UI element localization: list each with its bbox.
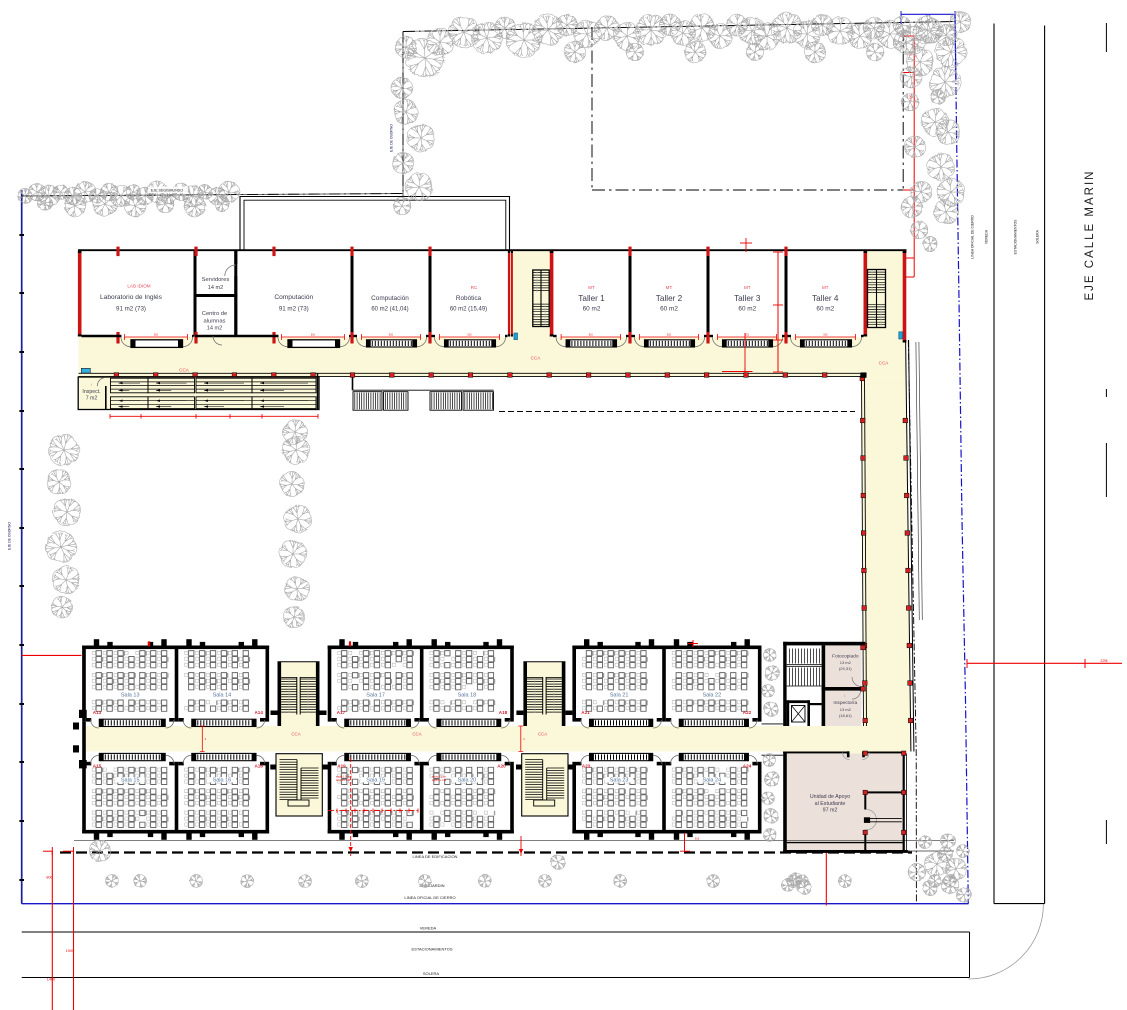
svg-text:510: 510: [389, 334, 394, 337]
svg-text:2296: 2296: [1100, 659, 1107, 663]
svg-text:800: 800: [46, 876, 52, 880]
svg-text:7 m2: 7 m2: [86, 395, 98, 401]
svg-text:Taller 4: Taller 4: [812, 294, 839, 303]
svg-text:MT: MT: [588, 285, 595, 290]
svg-text:Computación: Computación: [274, 294, 313, 301]
svg-text:510: 510: [589, 334, 594, 337]
svg-text:MT: MT: [744, 285, 751, 290]
svg-text:A16: A16: [254, 764, 263, 769]
svg-text:510: 510: [667, 334, 672, 337]
svg-text:(18,61): (18,61): [839, 713, 852, 718]
svg-text:14 m2: 14 m2: [208, 285, 224, 291]
svg-text:97 m2: 97 m2: [823, 808, 838, 814]
svg-text:CCA: CCA: [291, 732, 300, 737]
svg-text:Sala 15: Sala 15: [121, 778, 140, 784]
svg-text:13 m2: 13 m2: [840, 660, 852, 665]
svg-text:Sala 14: Sala 14: [213, 693, 232, 699]
svg-text:ancho 1.20 m: ancho 1.20 m: [432, 777, 446, 779]
svg-text:510: 510: [695, 837, 700, 841]
svg-text:Fotocopiado: Fotocopiado: [832, 654, 859, 660]
svg-text:Inspectoría: Inspectoría: [833, 700, 857, 706]
svg-text:Sala 13: Sala 13: [121, 693, 140, 699]
svg-text:Inspect.: Inspect.: [82, 389, 100, 395]
svg-text:1900: 1900: [66, 949, 74, 953]
svg-text:ancho 1.20 m: ancho 1.20 m: [336, 777, 350, 779]
svg-text:largo rev 2.40: largo rev 2.40: [336, 779, 351, 782]
svg-text:Sala 22: Sala 22: [702, 693, 721, 699]
svg-text:SOLERA: SOLERA: [423, 971, 440, 976]
svg-text:LINEA OFICIAL DE CIERRO: LINEA OFICIAL DE CIERRO: [971, 215, 975, 259]
svg-text:Unidad de Apoyo: Unidad de Apoyo: [810, 794, 850, 800]
svg-text:510: 510: [154, 334, 159, 337]
svg-text:MT: MT: [822, 285, 829, 290]
svg-text:A17: A17: [337, 710, 346, 715]
svg-text:ESTACIONAMIENTOS: ESTACIONAMIENTOS: [1014, 219, 1018, 254]
svg-text:Sala 16: Sala 16: [213, 778, 232, 784]
svg-text:alumnas: alumnas: [204, 318, 226, 324]
svg-text:Computación: Computación: [371, 295, 409, 302]
svg-text:EJE CALLE MARIN: EJE CALLE MARIN: [1084, 170, 1096, 301]
svg-text:510: 510: [745, 334, 750, 337]
svg-text:largo rev 2.40: largo rev 2.40: [432, 779, 447, 782]
svg-text:A21: A21: [581, 710, 590, 715]
svg-text:Sala 19: Sala 19: [366, 778, 385, 784]
svg-text:al Estudiante: al Estudiante: [815, 801, 846, 807]
svg-text:Sala 20: Sala 20: [458, 778, 477, 784]
svg-text:CCA: CCA: [531, 356, 542, 361]
svg-text:Laboratorio de Inglés: Laboratorio de Inglés: [100, 294, 163, 301]
svg-text:A22: A22: [743, 710, 752, 715]
svg-text:EJE DE OSORNO: EJE DE OSORNO: [390, 124, 394, 152]
svg-text:91 m2 (73): 91 m2 (73): [279, 306, 309, 313]
svg-text:A19: A19: [337, 764, 346, 769]
svg-text:Sala 23: Sala 23: [610, 778, 629, 784]
svg-text:Taller 2: Taller 2: [656, 294, 683, 303]
svg-text:EJE SEGISMUNDO: EJE SEGISMUNDO: [151, 189, 183, 193]
svg-text:13 m2: 13 m2: [840, 707, 852, 712]
svg-text:Centro de: Centro de: [202, 311, 227, 317]
svg-text:Sala 18: Sala 18: [458, 693, 477, 699]
svg-text:A13: A13: [93, 710, 102, 715]
svg-text:CCA: CCA: [879, 361, 890, 366]
svg-text:A20: A20: [497, 764, 506, 769]
svg-text:91 m2 (73): 91 m2 (73): [116, 306, 146, 313]
svg-text:510: 510: [467, 334, 472, 337]
svg-text:510: 510: [823, 334, 828, 337]
svg-text:SOLERA: SOLERA: [1036, 229, 1040, 243]
svg-text:LINEA DE EDIFICACION: LINEA DE EDIFICACION: [413, 854, 458, 859]
svg-text:60 m2: 60 m2: [583, 306, 601, 313]
svg-text:60 m2: 60 m2: [816, 306, 834, 313]
svg-text:VEREDA: VEREDA: [985, 229, 989, 244]
svg-text:A18: A18: [499, 710, 508, 715]
svg-text:A23: A23: [582, 764, 591, 769]
svg-text:CCA: CCA: [538, 732, 547, 737]
svg-text:Sala 21: Sala 21: [610, 693, 629, 699]
svg-text:A14: A14: [254, 710, 263, 715]
svg-text:60 m2: 60 m2: [660, 306, 678, 313]
svg-text:A24: A24: [743, 764, 752, 769]
svg-text:Sala 17: Sala 17: [366, 693, 385, 699]
svg-text:60 m2: 60 m2: [738, 306, 756, 313]
svg-text:Taller 1: Taller 1: [578, 294, 605, 303]
svg-text:RC: RC: [471, 285, 478, 290]
svg-text:(29,31): (29,31): [839, 666, 852, 671]
svg-text:Servidores: Servidores: [202, 277, 230, 283]
svg-text:VEREDA: VEREDA: [420, 926, 437, 931]
svg-text:510: 510: [311, 334, 316, 337]
svg-text:60 m2 (41,04): 60 m2 (41,04): [371, 307, 408, 313]
svg-text:A15: A15: [93, 764, 102, 769]
svg-text:ESTACIONAMIENTOS: ESTACIONAMIENTOS: [412, 947, 453, 952]
svg-text:60 m2 (15,49): 60 m2 (15,49): [450, 307, 487, 313]
svg-text:Sala 24: Sala 24: [702, 778, 721, 784]
svg-text:CCA: CCA: [179, 368, 190, 373]
svg-text:Robótica: Robótica: [456, 295, 482, 302]
svg-text:LAB IDIOM: LAB IDIOM: [127, 284, 150, 289]
svg-text:Taller 3: Taller 3: [734, 294, 761, 303]
svg-text:CCA: CCA: [412, 732, 421, 737]
svg-text:LINEA OFICIAL DE CIERRO: LINEA OFICIAL DE CIERRO: [404, 895, 455, 900]
svg-text:14 m2: 14 m2: [207, 326, 223, 332]
svg-text:EJE DE OSORNO: EJE DE OSORNO: [8, 522, 12, 550]
svg-text:1400: 1400: [47, 978, 55, 982]
svg-text:MT: MT: [666, 285, 673, 290]
